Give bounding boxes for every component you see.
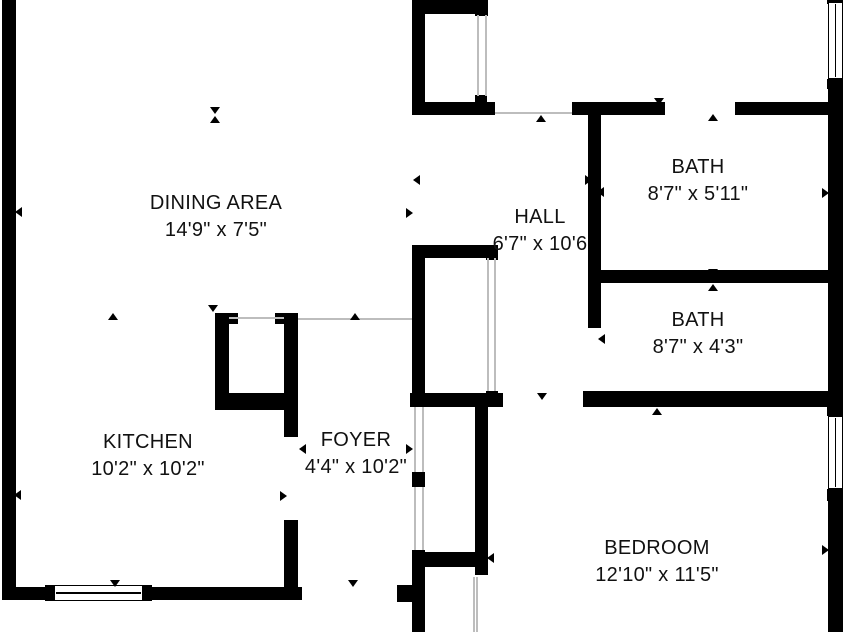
dimension-arrow-down (654, 98, 664, 105)
room-dimensions: 8'7" x 5'11" (648, 181, 749, 208)
room-name: KITCHEN (91, 429, 205, 456)
window-glass-line (835, 4, 837, 77)
door-opening-line (477, 15, 479, 96)
room-label-bath-upper: BATH8'7" x 5'11" (648, 154, 749, 208)
dimension-arrow-left (597, 187, 604, 197)
dimension-arrow-up (108, 313, 118, 320)
wall-segment (475, 400, 488, 575)
wall-segment (588, 115, 601, 328)
room-label-bedroom: BEDROOM12'10" x 11'5" (595, 535, 719, 589)
room-name: BEDROOM (595, 535, 719, 562)
room-name: FOYER (305, 427, 407, 454)
window-frame-cap (827, 79, 843, 89)
wall-segment (475, 95, 487, 103)
room-name: BATH (653, 307, 744, 334)
door-opening-line (487, 258, 489, 391)
dimension-arrow-down (709, 391, 719, 398)
wall-segment (215, 393, 298, 410)
wall-segment (2, 0, 16, 600)
door-opening-line (422, 487, 424, 550)
dimension-arrow-up (536, 115, 546, 122)
dimension-arrow-right (822, 188, 829, 198)
floorplan-canvas: DINING AREA14'9" x 7'5"KITCHEN10'2" x 10… (0, 0, 843, 632)
dimension-arrow-left (598, 334, 605, 344)
dimension-arrow-up (708, 114, 718, 121)
dimension-arrow-right (585, 175, 592, 185)
room-dimensions: 10'2" x 10'2" (91, 456, 205, 483)
dimension-arrow-up (210, 116, 220, 123)
wall-segment (284, 520, 298, 587)
wall-segment (412, 245, 425, 407)
room-dimensions: 14'9" x 7'5" (150, 217, 282, 244)
wall-segment (284, 313, 298, 437)
wall-segment (412, 472, 425, 487)
wall-segment (412, 0, 425, 115)
wall-segment (475, 0, 488, 16)
window-frame-cap (143, 585, 152, 601)
dimension-arrow-up (350, 313, 360, 320)
dimension-arrow-left (15, 207, 22, 217)
dimension-arrow-down (208, 305, 218, 312)
wall-segment (735, 102, 828, 115)
door-opening-line (414, 407, 416, 472)
dimension-arrow-left (14, 490, 21, 500)
room-dimensions: 12'10" x 11'5" (595, 562, 719, 589)
room-dimensions: 6'7" x 10'6 (493, 231, 588, 258)
wall-segment (397, 585, 412, 602)
room-label-foyer: FOYER4'4" x 10'2" (305, 427, 407, 481)
door-opening-line (495, 112, 572, 114)
room-dimensions: 4'4" x 10'2" (305, 454, 407, 481)
room-label-hall: HALL6'7" x 10'6 (493, 204, 588, 258)
door-opening-line (476, 577, 478, 632)
dimension-arrow-down (210, 107, 220, 114)
wall-segment (412, 102, 495, 115)
door-opening-line (473, 577, 475, 632)
room-name: HALL (493, 204, 588, 231)
window-frame-cap (827, 405, 843, 416)
window-glass-line (56, 592, 141, 594)
dimension-arrow-left (413, 175, 420, 185)
dimension-arrow-down (537, 393, 547, 400)
dimension-arrow-down (708, 269, 718, 276)
wall-segment (425, 552, 477, 567)
room-label-kitchen: KITCHEN10'2" x 10'2" (91, 429, 205, 483)
dimension-arrow-right (822, 545, 829, 555)
wall-segment (583, 391, 828, 407)
window-glass-line (835, 418, 837, 487)
wall-segment (572, 102, 665, 115)
wall-segment (828, 0, 843, 632)
door-opening-line (485, 15, 487, 96)
dimension-arrow-left (487, 553, 494, 563)
door-opening-line (414, 487, 416, 550)
door-opening-line (494, 258, 496, 391)
dimension-arrow-down (348, 580, 358, 587)
room-dimensions: 8'7" x 4'3" (653, 334, 744, 361)
door-opening-line (422, 407, 424, 472)
dimension-arrow-up (652, 408, 662, 415)
wall-segment (412, 550, 425, 632)
room-label-dining: DINING AREA14'9" x 7'5" (150, 190, 282, 244)
dimension-arrow-right (280, 491, 287, 501)
dimension-arrow-right (406, 208, 413, 218)
room-label-bath-lower: BATH8'7" x 4'3" (653, 307, 744, 361)
room-name: DINING AREA (150, 190, 282, 217)
door-opening-line (229, 317, 284, 319)
window-frame-cap (45, 585, 54, 601)
dimension-arrow-up (708, 284, 718, 291)
window-frame-cap (827, 489, 843, 501)
dimension-arrow-down (110, 580, 120, 587)
room-name: BATH (648, 154, 749, 181)
